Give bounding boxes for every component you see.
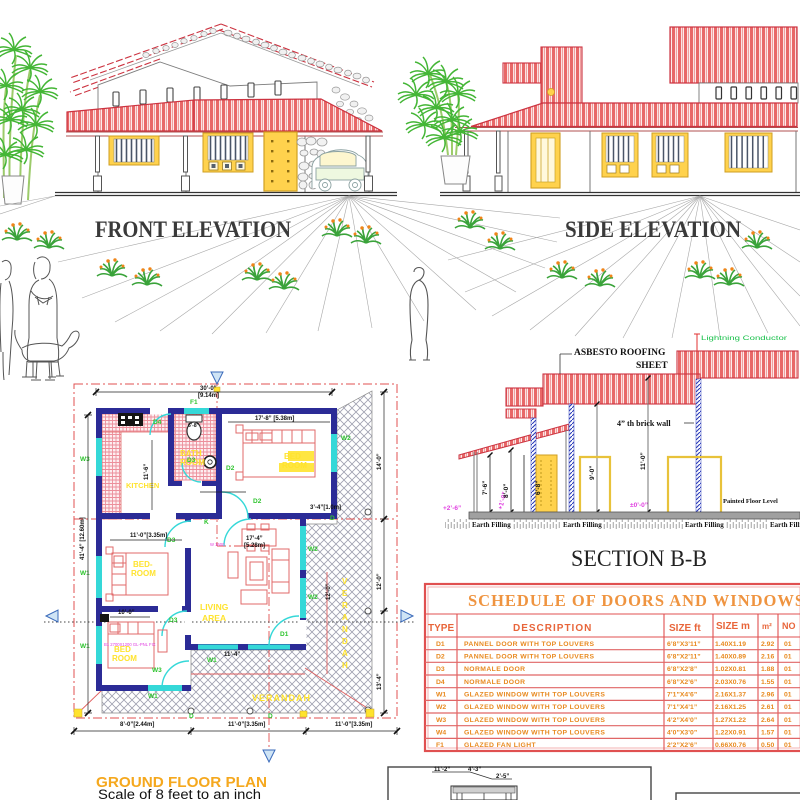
svg-text:A: A: [342, 649, 348, 658]
svg-text:01: 01: [784, 641, 792, 648]
svg-text:13’-4”: 13’-4”: [377, 673, 383, 690]
svg-text:6’-8”: 6’-8”: [188, 423, 200, 429]
svg-text:1.22X0.91: 1.22X0.91: [715, 730, 746, 737]
svg-text:D: D: [342, 637, 348, 646]
svg-text:PANNEL DOOR WITH TOP LOUVERS: PANNEL DOOR WITH TOP LOUVERS: [464, 641, 594, 648]
svg-text:11’-0”: 11’-0”: [640, 452, 647, 470]
svg-text:VERANDAH: VERANDAH: [252, 693, 311, 703]
svg-text:Earth Filling: Earth Filling: [685, 521, 724, 529]
svg-text:W1: W1: [207, 657, 217, 664]
svg-text:D4: D4: [436, 679, 445, 686]
svg-text:W2: W2: [308, 594, 318, 601]
svg-text:A: A: [342, 613, 348, 622]
svg-text:DESCRIPTION: DESCRIPTION: [513, 623, 592, 634]
svg-text:3’-4”[1.0m]: 3’-4”[1.0m]: [310, 505, 341, 511]
svg-text:GLAZED WINDOW WITH TOP LOUVERS: GLAZED WINDOW WITH TOP LOUVERS: [464, 717, 605, 724]
svg-text:1.57: 1.57: [761, 730, 774, 737]
svg-text:AREA: AREA: [202, 613, 226, 623]
svg-text:W3: W3: [80, 456, 90, 463]
svg-text:BED: BED: [284, 452, 301, 461]
svg-text:2.96: 2.96: [761, 692, 774, 699]
svg-text:Earth Filling: Earth Filling: [563, 521, 602, 529]
svg-text:D2: D2: [436, 654, 445, 661]
svg-text:KITCHEN: KITCHEN: [126, 481, 159, 490]
svg-text:R: R: [342, 601, 348, 610]
svg-text:NORMALE DOOR: NORMALE DOOR: [464, 666, 525, 673]
svg-text:11’-0”[3.35m]: 11’-0”[3.35m]: [228, 722, 265, 728]
svg-text:ROOM: ROOM: [282, 461, 307, 470]
svg-text:N: N: [342, 625, 348, 634]
svg-text:30’-0”: 30’-0”: [200, 386, 217, 392]
svg-text:NO: NO: [782, 621, 796, 631]
svg-text:BED-: BED-: [133, 560, 153, 569]
svg-text:2.92: 2.92: [761, 641, 774, 648]
svg-text:D3: D3: [187, 457, 196, 464]
svg-text:W2: W2: [308, 546, 318, 553]
svg-text:4’0”X3’0”: 4’0”X3’0”: [667, 730, 697, 737]
svg-text:2.16X1.25: 2.16X1.25: [715, 704, 746, 711]
svg-text:ROOM: ROOM: [131, 569, 156, 578]
svg-text:SCHEDULE OF DOORS AND WINDOWS: SCHEDULE OF DOORS AND WINDOWS: [468, 591, 800, 610]
svg-text:TYPE: TYPE: [428, 623, 454, 634]
svg-text:14’-0”: 14’-0”: [377, 453, 383, 470]
svg-text:LIVING: LIVING: [200, 602, 229, 612]
svg-text:01: 01: [784, 730, 792, 737]
svg-text:Earth Filling: Earth Filling: [472, 521, 511, 529]
svg-text:GLAZED WINDOW WITH TOP LOUVERS: GLAZED WINDOW WITH TOP LOUVERS: [464, 692, 605, 699]
svg-text:11’-0”[3.35m]: 11’-0”[3.35m]: [130, 533, 167, 539]
svg-text:41’-4” [12.60m]: 41’-4” [12.60m]: [80, 517, 86, 560]
svg-text:K: K: [204, 519, 209, 526]
svg-text:2.16: 2.16: [761, 654, 774, 661]
svg-text:GLAZED FAN LIGHT: GLAZED FAN LIGHT: [464, 742, 537, 749]
svg-text:2.61: 2.61: [761, 704, 774, 711]
svg-text:1.40X1.19: 1.40X1.19: [715, 641, 746, 648]
svg-text:7’1”X4’1”: 7’1”X4’1”: [667, 704, 697, 711]
svg-text:6’8”X3’11”: 6’8”X3’11”: [667, 641, 701, 648]
svg-text:17’-8” [5.38m]: 17’-8” [5.38m]: [255, 416, 294, 422]
svg-text:W2: W2: [436, 704, 446, 711]
svg-text:01: 01: [784, 742, 792, 749]
svg-text:W3: W3: [152, 667, 162, 674]
svg-text:1.55: 1.55: [761, 679, 774, 686]
svg-text:Scale of 8 feet to an inch: Scale of 8 feet to an inch: [98, 787, 261, 800]
svg-text:17’-4”: 17’-4”: [246, 536, 263, 542]
svg-text:Earth Filling: Earth Filling: [770, 521, 800, 529]
svg-text:V: V: [342, 577, 348, 586]
svg-text:FRONT ELEVATION: FRONT ELEVATION: [95, 217, 291, 242]
svg-text:W 1500: W 1500: [210, 542, 225, 547]
svg-text:0.66X0.76: 0.66X0.76: [715, 742, 746, 749]
svg-text:12’-0”: 12’-0”: [377, 573, 383, 590]
svg-text:W1: W1: [80, 570, 90, 577]
svg-text:8’-0”: 8’-0”: [503, 484, 510, 498]
svg-text:W1: W1: [80, 643, 90, 650]
svg-text:D1: D1: [280, 631, 289, 638]
svg-text:m²: m²: [762, 622, 772, 631]
svg-text:11’-6”: 11’-6”: [144, 464, 150, 480]
svg-text:D2: D2: [253, 498, 262, 505]
svg-text:12’-0”: 12’-0”: [326, 583, 332, 600]
svg-text:SECTION B-B: SECTION B-B: [571, 546, 707, 571]
svg-text:[9.14m]: [9.14m]: [198, 393, 219, 399]
svg-text:D1: D1: [436, 641, 445, 648]
svg-text:NORMALE DOOR: NORMALE DOOR: [464, 679, 525, 686]
svg-text:SIDE ELEVATION: SIDE ELEVATION: [565, 217, 741, 242]
svg-text:6’-8”: 6’-8”: [535, 481, 542, 495]
svg-text:D4: D4: [153, 419, 162, 426]
svg-text:W4: W4: [436, 730, 446, 737]
svg-text:D: D: [268, 713, 273, 720]
svg-text:8’-0”[2.44m]: 8’-0”[2.44m]: [120, 722, 154, 728]
svg-text:7’-6”: 7’-6”: [482, 481, 489, 495]
svg-text:D2: D2: [226, 465, 235, 472]
svg-text:PANNEL DOOR WITH TOP LOUVERS: PANNEL DOOR WITH TOP LOUVERS: [464, 654, 594, 661]
svg-text:B1 2700X1200 GL-PNL FIX: B1 2700X1200 GL-PNL FIX: [104, 642, 156, 647]
svg-text:F1: F1: [190, 399, 198, 406]
svg-text:2’-5”: 2’-5”: [496, 774, 509, 780]
svg-text:9’-0”: 9’-0”: [589, 466, 596, 480]
svg-text:2’2”X2’6”: 2’2”X2’6”: [667, 742, 697, 749]
svg-text:D3: D3: [169, 617, 178, 624]
svg-text:11’-0”[3.35m]: 11’-0”[3.35m]: [335, 722, 372, 728]
svg-text:[5.28m]: [5.28m]: [244, 543, 265, 549]
svg-text:Painted Floor Level: Painted Floor Level: [723, 498, 778, 505]
svg-text:7’1”X4’6”: 7’1”X4’6”: [667, 692, 697, 699]
svg-text:11’-4”: 11’-4”: [224, 652, 240, 658]
svg-text:01: 01: [784, 654, 792, 661]
svg-text:4’-3”: 4’-3”: [468, 767, 481, 773]
svg-text:2.16X1.37: 2.16X1.37: [715, 692, 746, 699]
svg-text:GLAZED WINDOW WITH TOP LOUVERS: GLAZED WINDOW WITH TOP LOUVERS: [464, 730, 605, 737]
svg-text:1.27X1.22: 1.27X1.22: [715, 717, 746, 724]
svg-text:0.50: 0.50: [761, 742, 774, 749]
svg-text:F1: F1: [436, 742, 444, 749]
svg-text:4” th brick wall: 4” th brick wall: [617, 419, 671, 428]
svg-text:1.02X0.81: 1.02X0.81: [715, 666, 746, 673]
svg-text:01: 01: [784, 717, 792, 724]
svg-text:11’-2”: 11’-2”: [434, 767, 450, 773]
svg-text:01: 01: [784, 666, 792, 673]
svg-text:ROOM: ROOM: [112, 654, 137, 663]
svg-text:H: H: [342, 661, 348, 670]
svg-text:D: D: [189, 713, 194, 720]
svg-text:ASBESTO ROOFING: ASBESTO ROOFING: [574, 348, 666, 358]
svg-text:GLAZED WINDOW WITH TOP LOUVERS: GLAZED WINDOW WITH TOP LOUVERS: [464, 704, 605, 711]
svg-text:6’8”X2’6”: 6’8”X2’6”: [667, 679, 697, 686]
svg-text:1.40X0.89: 1.40X0.89: [715, 654, 746, 661]
svg-text:E: E: [342, 589, 348, 598]
svg-text:6’8”X2’8”: 6’8”X2’8”: [667, 666, 697, 673]
svg-text:01: 01: [784, 679, 792, 686]
svg-text:SIZE m: SIZE m: [716, 621, 750, 632]
svg-text:Lightning Conductor: Lightning Conductor: [701, 335, 788, 342]
svg-text:01: 01: [784, 692, 792, 699]
svg-text:W2: W2: [341, 435, 351, 442]
svg-text:SHEET: SHEET: [636, 361, 668, 371]
svg-text:1.88: 1.88: [761, 666, 774, 673]
svg-text:W1: W1: [148, 693, 158, 700]
svg-text:2.64: 2.64: [761, 717, 774, 724]
svg-text:SIZE ft: SIZE ft: [669, 623, 701, 634]
svg-text:6’8”X2’11”: 6’8”X2’11”: [667, 654, 701, 661]
svg-text:W1: W1: [436, 692, 446, 699]
svg-text:D: D: [330, 515, 335, 522]
svg-text:±0’-0”: ±0’-0”: [630, 502, 648, 509]
svg-text:D3: D3: [436, 666, 445, 673]
svg-text:4’2”X4’0”: 4’2”X4’0”: [667, 717, 697, 724]
svg-text:D3: D3: [167, 537, 176, 544]
svg-text:+2’-6”: +2’-6”: [443, 505, 461, 512]
svg-text:01: 01: [784, 704, 792, 711]
svg-text:W3: W3: [436, 717, 446, 724]
svg-text:2.03X0.76: 2.03X0.76: [715, 679, 746, 686]
svg-text:10’-0”: 10’-0”: [118, 610, 135, 616]
